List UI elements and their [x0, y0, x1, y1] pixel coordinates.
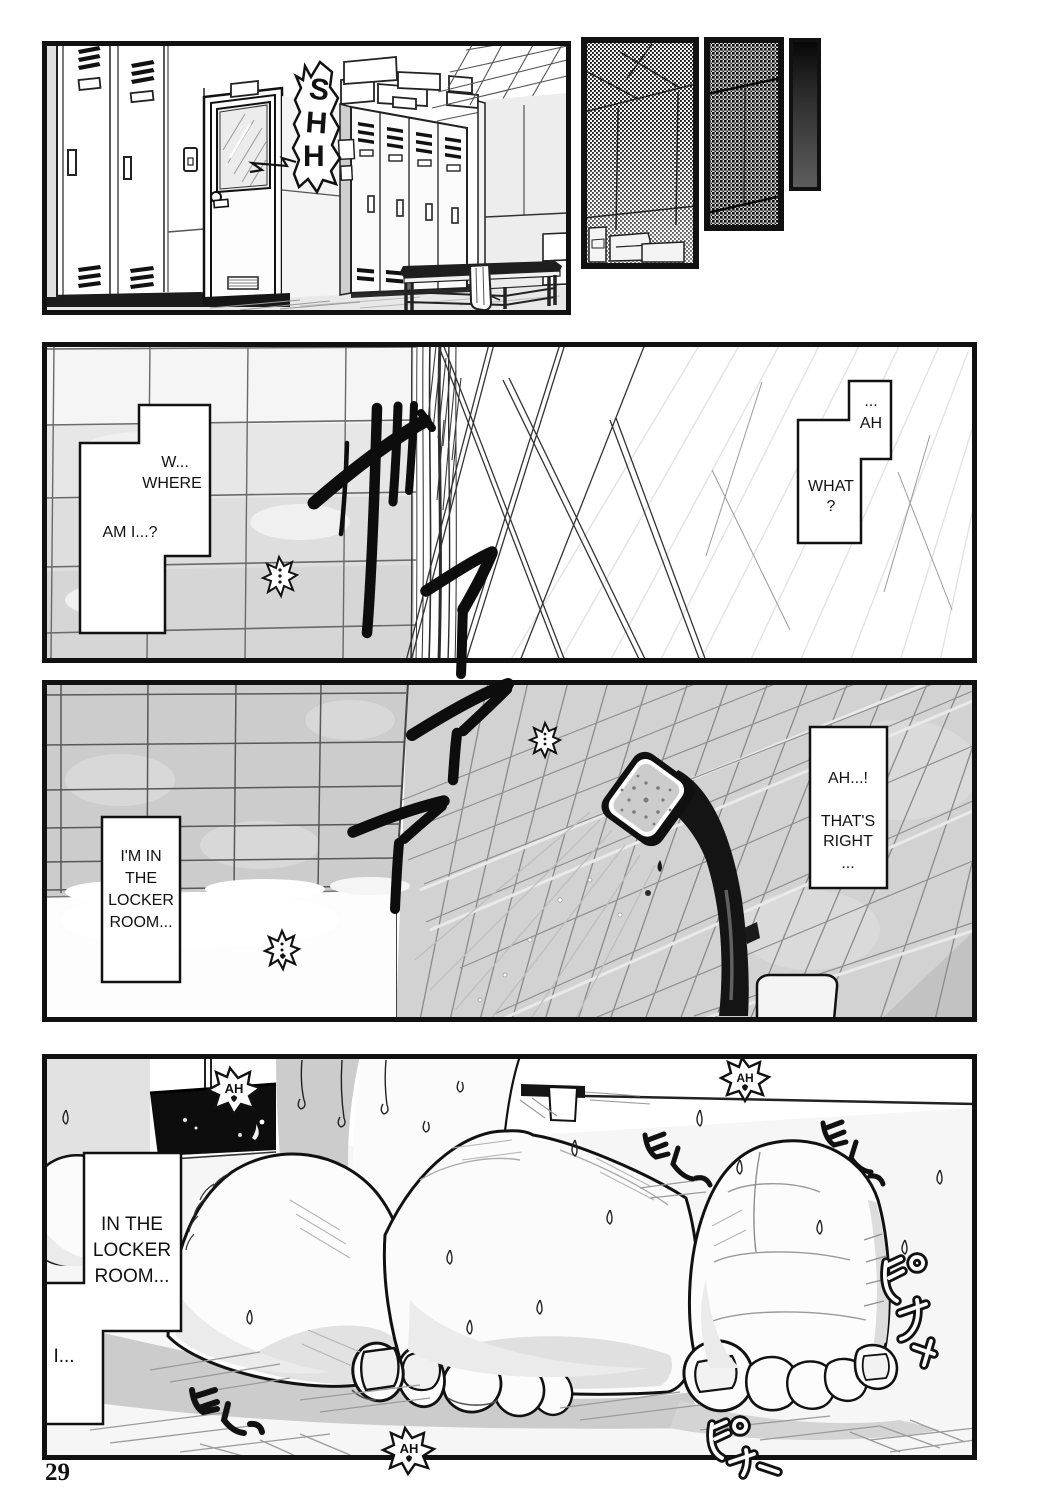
svg-text:WHERE: WHERE: [142, 475, 202, 492]
svg-text:AH: AH: [860, 415, 882, 432]
svg-text:...: ...: [841, 855, 854, 872]
svg-text:LOCKER: LOCKER: [93, 1240, 171, 1261]
svg-text:AM I...?: AM I...?: [102, 524, 157, 541]
svg-text:H: H: [305, 106, 329, 140]
svg-text:THAT'S: THAT'S: [821, 813, 875, 830]
svg-text:W...: W...: [161, 454, 189, 471]
svg-text:...: ...: [864, 393, 877, 410]
svg-text:ROOM...: ROOM...: [95, 1266, 170, 1287]
svg-text:AH: AH: [400, 1441, 419, 1456]
svg-text:AH: AH: [736, 1071, 753, 1085]
svg-text:?: ?: [827, 498, 836, 515]
svg-text:I...: I...: [53, 1346, 74, 1367]
svg-text:RIGHT: RIGHT: [823, 833, 873, 850]
svg-text:WHAT: WHAT: [808, 478, 854, 495]
svg-text:IN THE: IN THE: [101, 1214, 163, 1235]
svg-text:AH: AH: [225, 1081, 244, 1096]
svg-text:29: 29: [45, 1459, 70, 1486]
svg-text:H: H: [303, 140, 325, 173]
svg-text:LOCKER: LOCKER: [108, 892, 174, 909]
svg-text:I'M IN: I'M IN: [120, 848, 161, 865]
svg-text:THE: THE: [125, 870, 157, 887]
svg-text:AH...!: AH...!: [828, 770, 868, 787]
svg-text:ROOM...: ROOM...: [109, 914, 172, 931]
